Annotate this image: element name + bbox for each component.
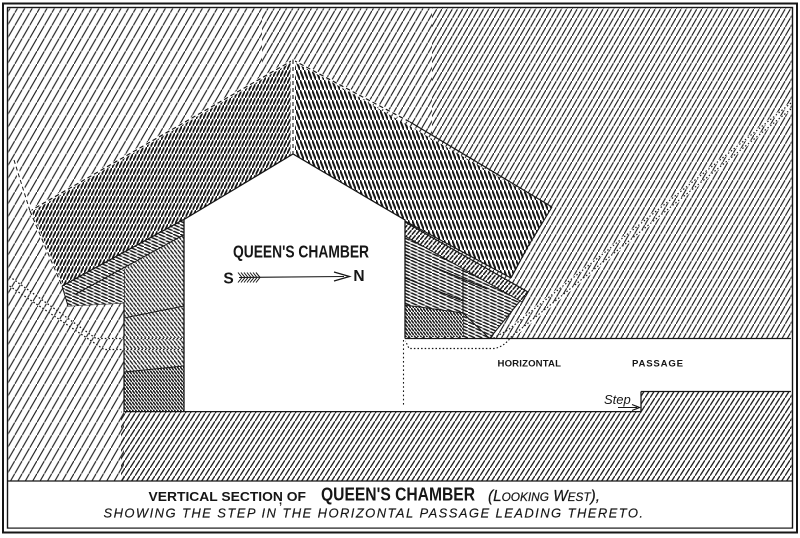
svg-text:(LOOKING WEST),: (LOOKING WEST), [488, 488, 600, 505]
svg-text:VERTICAL SECTION OF: VERTICAL SECTION OF [149, 489, 307, 504]
svg-text:S: S [223, 271, 233, 288]
svg-text:N: N [353, 268, 364, 285]
svg-text:HORIZONTAL: HORIZONTAL [498, 359, 562, 370]
svg-text:SHOWING THE STEP IN THE HORIZO: SHOWING THE STEP IN THE HORIZONTAL PASSA… [104, 506, 644, 521]
svg-text:Step: Step [604, 392, 631, 407]
svg-text:QUEEN'S CHAMBER: QUEEN'S CHAMBER [321, 484, 475, 505]
svg-text:QUEEN'S CHAMBER: QUEEN'S CHAMBER [233, 242, 369, 262]
svg-text:PASSAGE: PASSAGE [632, 359, 684, 370]
